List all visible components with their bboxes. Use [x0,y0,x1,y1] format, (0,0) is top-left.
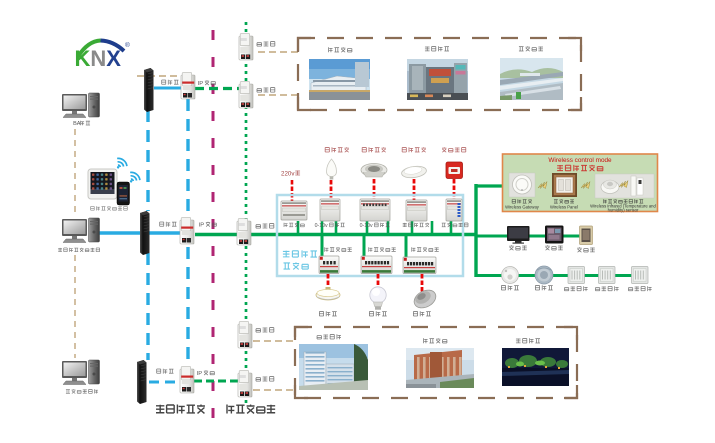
svg-text:IP: IP [198,81,204,87]
svg-text:Wireless Panel: Wireless Panel [550,205,578,210]
svg-text:BA: BA [73,121,81,127]
svg-text:IP: IP [197,371,203,377]
svg-text:KNX: KNX [75,46,122,71]
svg-text:0-10v: 0-10v [315,223,328,229]
svg-text:Wireless control mode: Wireless control mode [548,157,612,164]
svg-text:IP: IP [199,222,205,228]
svg-text:0-10v: 0-10v [360,223,373,229]
svg-text:humidity) sensor: humidity) sensor [608,207,639,212]
svg-text:Wireless Gateway: Wireless Gateway [505,205,540,210]
svg-text:220v: 220v [281,170,295,177]
svg-text:®: ® [125,41,130,49]
